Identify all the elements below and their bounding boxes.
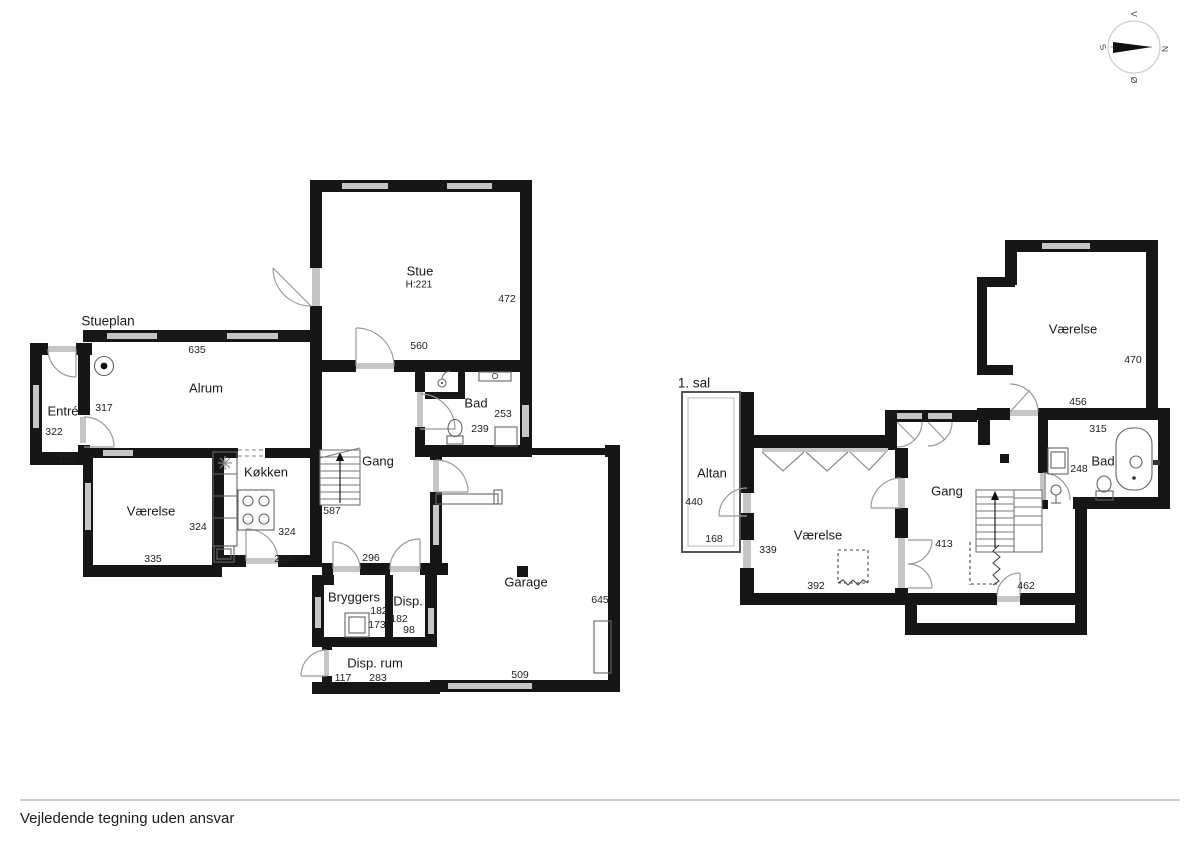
dim-bad-bottom: 239: [471, 423, 489, 435]
dim-entre-door: 317: [95, 402, 113, 414]
room-label-altan: Altan: [697, 466, 727, 481]
dim-vaerelse-bottom: 335: [144, 553, 162, 565]
dim-altan-bottom: 168: [705, 533, 723, 545]
room-label-disp-rum: Disp. rum: [347, 656, 403, 671]
dim-entre-bottom: 122: [58, 453, 76, 465]
dim-vaerelse-no-bottom: 456: [1069, 396, 1087, 408]
dim-bryggers-width: 182: [370, 605, 388, 617]
dim-bad-right: 253: [494, 408, 512, 420]
shower-icon: [438, 371, 450, 387]
pedestal-icon: [1051, 485, 1061, 503]
dim-gang-stairs: 587: [323, 505, 341, 517]
toilet-icon: [1096, 476, 1113, 500]
dim-vaerelse-sv-bottom: 392: [807, 580, 825, 592]
wood-stove-icon: [95, 357, 114, 376]
dim-stue-ceiling: H:221: [406, 280, 433, 291]
dim-kokken-bottom: 288: [274, 553, 292, 565]
dim-stue-bottom: 560: [410, 340, 428, 352]
room-label-vaerelse-sv: Værelse: [794, 528, 842, 543]
floorplan-drawing: V N S Ø: [0, 0, 1200, 848]
skylight-dashed-icon: [838, 550, 868, 585]
room-label-gang-first: Gang: [931, 484, 963, 499]
room-label-bryggers: Bryggers: [328, 590, 380, 605]
compass-east-label: Ø: [1129, 77, 1139, 84]
dim-bad-first-top: 315: [1089, 423, 1107, 435]
dim-kokken-right: 324: [278, 526, 296, 538]
stove-island-icon: [238, 490, 274, 530]
room-label-entre: Entré: [47, 404, 78, 419]
bath-cabinet-icon: [495, 427, 517, 446]
compass-north-label: N: [1160, 46, 1170, 52]
dim-entre-left: 322: [45, 426, 63, 438]
room-label-garage: Garage: [504, 575, 547, 590]
room-label-bad-first: Bad: [1091, 454, 1114, 469]
washing-machine-icon: [345, 613, 369, 637]
dim-gang-first-left: 413: [935, 538, 953, 550]
dim-disp-rum-left: 117: [335, 672, 352, 684]
room-label-bad-ground: Bad: [464, 396, 487, 411]
bathtub-icon: [1116, 428, 1160, 490]
dim-vaerelse-right: 324: [189, 521, 207, 533]
dim-garage-bottom: 509: [511, 669, 529, 681]
compass-needle-icon: [1113, 42, 1152, 53]
dim-stue-right: 472: [498, 293, 516, 305]
dim-garage-right: 645: [591, 594, 609, 606]
plan-label-stueplan: Stueplan: [81, 314, 134, 329]
footer-disclaimer: Vejledende tegning uden ansvar: [20, 810, 234, 827]
fridge-snowflake-icon: [218, 456, 232, 470]
sink-icon: [1048, 448, 1068, 474]
dim-disp-rum-bottom: 283: [369, 672, 387, 684]
plan-label-1sal: 1. sal: [678, 376, 710, 391]
dim-vaerelse-no-right: 470: [1124, 354, 1142, 366]
stairs-ground-icon: [320, 448, 360, 505]
compass-south-label: S: [1097, 43, 1108, 52]
dim-disp-height: 98: [403, 624, 415, 636]
room-label-gang-ground: Gang: [362, 454, 394, 469]
sink-icon: [479, 372, 511, 381]
dim-gang-bottom: 296: [362, 552, 380, 564]
dim-altan-left: 440: [685, 496, 703, 508]
dim-vaerelse-sv-left: 339: [759, 544, 777, 556]
room-label-kokken: Køkken: [244, 465, 288, 480]
room-label-stue: Stue: [407, 264, 434, 279]
floorplan-page: V N S Ø Stueplan Stue H:221 472 560 Alru…: [0, 0, 1200, 848]
compass-rose: V N S Ø: [1097, 11, 1170, 84]
stairs-first-icon: [976, 490, 1042, 552]
first-floor-plan: [682, 240, 1170, 635]
dim-gang-first-bottom: 462: [1017, 580, 1035, 592]
dim-bad-first-left: 248: [1070, 463, 1088, 475]
dim-alrum-top: 635: [188, 344, 206, 356]
compass-west-label: V: [1129, 11, 1139, 17]
room-label-alrum: Alrum: [189, 381, 223, 396]
ground-floor-walls: [30, 180, 620, 694]
ground-floor-plan: [30, 180, 620, 694]
dim-bryggers-height: 173: [368, 619, 386, 631]
room-label-disp: Disp.: [393, 594, 423, 609]
first-floor-walls: [740, 240, 1170, 635]
room-label-vaerelse-ground: Værelse: [127, 504, 175, 519]
room-label-vaerelse-no: Værelse: [1049, 322, 1097, 337]
